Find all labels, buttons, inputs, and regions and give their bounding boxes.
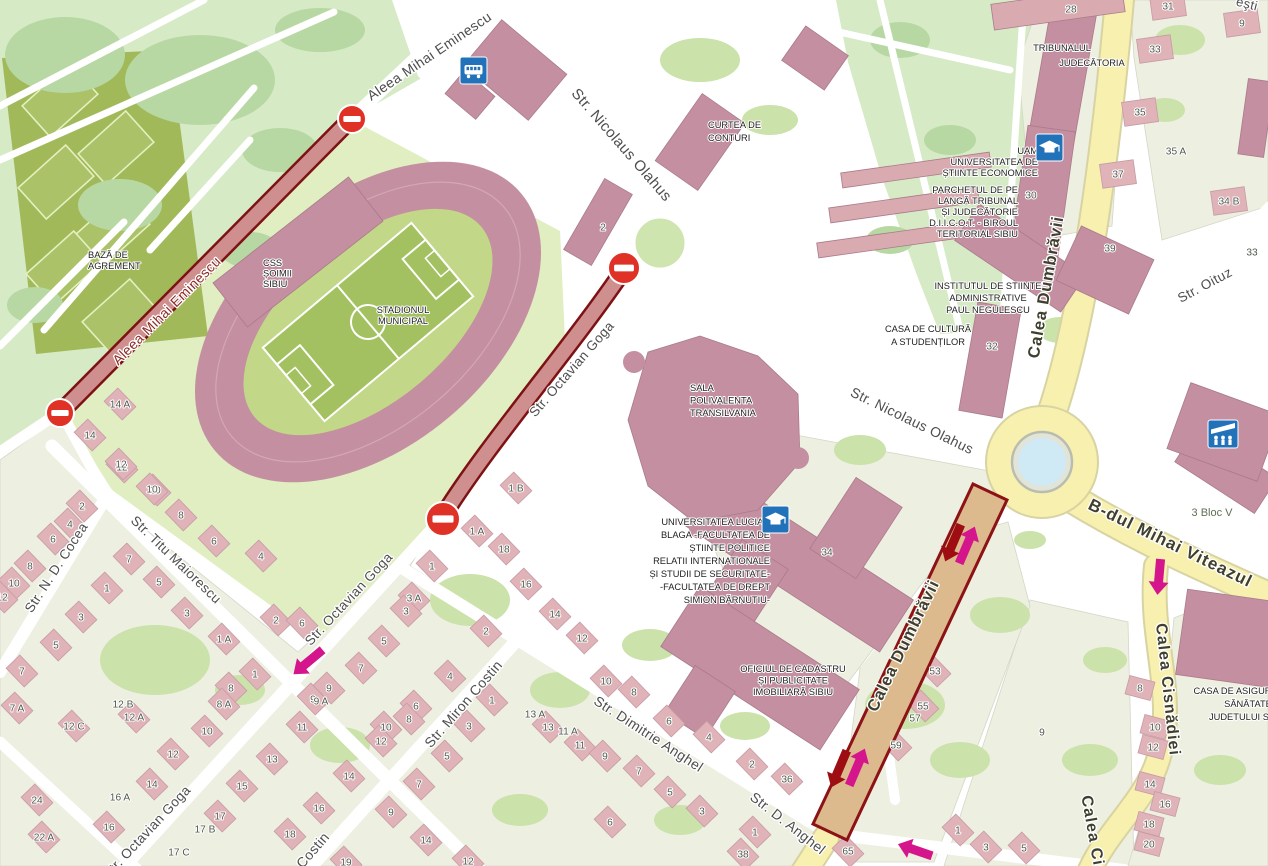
house-number: 3 A bbox=[407, 594, 422, 605]
house-number: 14 bbox=[420, 836, 432, 847]
house-number: 4 bbox=[706, 733, 712, 744]
house-number: 39 bbox=[1104, 244, 1116, 255]
house-number: 4 bbox=[67, 520, 73, 531]
green-patch bbox=[1062, 744, 1118, 776]
house-number: 37 bbox=[1112, 170, 1124, 181]
house-number: 10 bbox=[146, 485, 158, 496]
house-number: 15 bbox=[236, 782, 248, 793]
house-number: 3 bbox=[184, 609, 190, 620]
house-number: 9 bbox=[1239, 19, 1245, 30]
house-number: 14 bbox=[84, 431, 96, 442]
house-number: 12 A bbox=[124, 713, 145, 724]
green-patch bbox=[430, 574, 510, 626]
house-number: 7 bbox=[636, 767, 642, 778]
house-number: 12 bbox=[1147, 743, 1159, 754]
house-number: 1 bbox=[752, 828, 758, 839]
house-number: 12 bbox=[0, 593, 8, 604]
house-number: 6 bbox=[413, 702, 419, 713]
green-patch bbox=[492, 794, 548, 826]
house-number: 8 bbox=[406, 715, 412, 726]
poi-label-institutul-negulescu: INSTITUTUL DE STIINTEADMINISTRATIVEPAUL … bbox=[934, 281, 1041, 315]
theater-icon bbox=[1208, 420, 1238, 448]
poi-label-bloc-v: 3 Bloc V bbox=[1192, 507, 1234, 519]
no-entry-icon bbox=[338, 105, 366, 133]
house-number: 32 bbox=[986, 342, 998, 353]
green-circle bbox=[634, 217, 686, 269]
green-patch bbox=[660, 38, 740, 82]
house-number: 22 A bbox=[34, 833, 55, 844]
house-number: 1 A bbox=[217, 635, 232, 646]
house-number: 8 bbox=[228, 684, 234, 695]
building bbox=[1176, 589, 1268, 691]
house-number: 1 bbox=[955, 826, 961, 837]
house-number: 8 bbox=[631, 688, 637, 699]
house-number: 2 bbox=[749, 760, 755, 771]
house-number: 33 bbox=[1246, 248, 1258, 259]
house-number: 1 A bbox=[470, 527, 485, 538]
house-number: 1 bbox=[252, 670, 258, 681]
house-number: 3 bbox=[699, 807, 705, 818]
house-number: 17 B bbox=[195, 825, 216, 836]
green-patch bbox=[720, 712, 770, 740]
house-number: 59 bbox=[890, 741, 902, 752]
house-number: 10 bbox=[8, 579, 20, 590]
house-number: 38 bbox=[737, 850, 749, 861]
house-number: 14 bbox=[343, 772, 355, 783]
house-number: 34 B bbox=[1219, 197, 1240, 208]
house-number: 11 bbox=[575, 741, 586, 752]
house-number: 57 bbox=[909, 714, 921, 725]
house-number: 5 bbox=[156, 578, 162, 589]
house-number: 18 bbox=[284, 830, 296, 841]
house-number: 2 bbox=[600, 223, 606, 234]
house-number: 16 bbox=[103, 823, 115, 834]
house-number: 11 bbox=[297, 723, 308, 734]
house-number: 13 bbox=[542, 723, 554, 734]
house-number: 9 bbox=[388, 808, 394, 819]
house-number: 10 bbox=[201, 727, 213, 738]
house-number: 12 B bbox=[113, 700, 134, 711]
house-number: 13 A bbox=[525, 710, 546, 721]
house-number: 31 bbox=[1162, 2, 1174, 13]
house-number: 16 bbox=[520, 580, 532, 591]
house-number: 53 bbox=[929, 667, 941, 678]
house-number: 55 bbox=[917, 702, 929, 713]
house-number: 18 bbox=[1143, 820, 1155, 831]
house-number: 6 bbox=[299, 619, 305, 630]
house-number: 7 A bbox=[10, 704, 25, 715]
house-number: 8 bbox=[178, 511, 184, 522]
house-number: 30 bbox=[1025, 191, 1037, 202]
house-number: 6 bbox=[50, 535, 56, 546]
house-number: 6 bbox=[211, 537, 217, 548]
house-number: 11 A bbox=[558, 727, 578, 738]
house-number: 9 bbox=[326, 684, 332, 695]
house-number: 3 bbox=[466, 722, 472, 733]
house-number: 2 bbox=[483, 627, 489, 638]
poi-label-tribunalul: TRIBUNALUL bbox=[1033, 43, 1091, 53]
house-number: 12 C bbox=[63, 722, 85, 733]
house-number: 3 bbox=[78, 613, 84, 624]
fountain-water bbox=[1018, 438, 1066, 486]
house-number: 35 bbox=[1134, 108, 1146, 119]
house-number: 9 bbox=[602, 752, 608, 763]
house-number: 7 bbox=[358, 664, 364, 675]
house-number: 8 A bbox=[217, 700, 232, 711]
house-number: 28 bbox=[1065, 5, 1077, 16]
green-patch bbox=[970, 597, 1030, 633]
no-entry-icon bbox=[426, 502, 460, 536]
green-patch bbox=[1014, 531, 1046, 549]
poi-label-parchetul: PARCHETUL DE PELANGĂ TRIBUNALȘI JUDECĂTO… bbox=[929, 185, 1018, 239]
house-number: 10 bbox=[1149, 723, 1161, 734]
house-number: 12 bbox=[462, 857, 474, 866]
house-number: 10 bbox=[380, 723, 392, 734]
green-patch bbox=[100, 625, 210, 695]
house-number: 8 bbox=[1137, 684, 1143, 695]
house-number: 12 bbox=[576, 634, 588, 645]
map-svg[interactable]: Aleea Mihai EminescuAleea Mihai Eminescu… bbox=[0, 0, 1268, 866]
house-number: 7 bbox=[126, 555, 132, 566]
house-number: 4 bbox=[258, 552, 264, 563]
house-number: 1 B bbox=[508, 484, 523, 495]
bus-stop-icon bbox=[460, 57, 487, 84]
green-patch bbox=[834, 435, 886, 465]
house-number: 65 bbox=[842, 847, 854, 858]
house-number: 5 bbox=[444, 752, 450, 763]
house-number: 3 bbox=[403, 607, 409, 618]
university-icon bbox=[1036, 134, 1063, 161]
house-number: 6 bbox=[666, 717, 672, 728]
university-icon bbox=[762, 506, 789, 533]
house-number: 8 bbox=[27, 562, 33, 573]
house-number: 33 bbox=[1149, 45, 1161, 56]
house-number: 24 bbox=[31, 796, 43, 807]
house-number: 2 bbox=[79, 502, 85, 513]
house-number: 36 bbox=[781, 775, 793, 786]
house-number: 2 bbox=[273, 616, 279, 627]
no-entry-icon bbox=[608, 252, 640, 284]
house-number: 14 bbox=[146, 780, 158, 791]
house-number: 5 bbox=[667, 788, 673, 799]
green-patch bbox=[5, 17, 125, 93]
house-number: 3 bbox=[983, 843, 989, 854]
house-number: 14 bbox=[549, 610, 561, 621]
poi-label-stadionul-municipal: STADIONULMUNICIPAL bbox=[377, 305, 430, 326]
house-number: 9 A bbox=[314, 697, 329, 708]
house-number: 18 bbox=[498, 545, 510, 556]
house-number: 5 bbox=[381, 637, 387, 648]
house-number: 10 bbox=[600, 677, 612, 688]
house-number: 4 bbox=[447, 672, 453, 683]
house-number: 19 bbox=[340, 858, 352, 866]
green-patch bbox=[924, 125, 976, 155]
house-number: 14 bbox=[1144, 780, 1156, 791]
house-number: 35 A bbox=[1166, 147, 1187, 158]
green-patch bbox=[930, 742, 990, 778]
house-number: 12 bbox=[167, 750, 179, 761]
house-number: 7 bbox=[19, 667, 25, 678]
green-patch bbox=[1083, 647, 1127, 673]
map-canvas[interactable]: Aleea Mihai EminescuAleea Mihai Eminescu… bbox=[0, 0, 1268, 866]
house-number: 1 bbox=[104, 584, 110, 595]
house-number: 1 bbox=[429, 562, 435, 573]
green-patch bbox=[1194, 755, 1246, 785]
house-number: 16 bbox=[313, 804, 325, 815]
house-number: 34 bbox=[821, 548, 833, 559]
house-number: 20 bbox=[1143, 840, 1155, 851]
house-number: 9 bbox=[1039, 728, 1045, 739]
house-number: 12 bbox=[375, 737, 387, 748]
house-number: 16 A bbox=[110, 793, 131, 804]
poi-label-judecatoria: JUDECĂTORIA bbox=[1059, 58, 1125, 68]
house-number: 7 bbox=[416, 780, 422, 791]
house-number: 16 bbox=[1159, 800, 1171, 811]
house-number: 14 A bbox=[110, 400, 131, 411]
house-number: 17 C bbox=[168, 848, 190, 859]
no-entry-icon bbox=[46, 399, 74, 427]
house-number: 5 bbox=[53, 641, 59, 652]
house-number: 5 bbox=[1021, 844, 1027, 855]
house-number: 17 bbox=[214, 812, 226, 823]
house-number: 12 bbox=[115, 460, 127, 471]
house-number: 6 bbox=[607, 818, 613, 829]
house-number: 1 bbox=[489, 696, 495, 707]
house-number: 13 bbox=[266, 755, 278, 766]
poi-label-universitatea-lucian-blaga: UNIVERSITATEA LUCIANBLAGA -FACULTATEA DE… bbox=[649, 517, 770, 605]
